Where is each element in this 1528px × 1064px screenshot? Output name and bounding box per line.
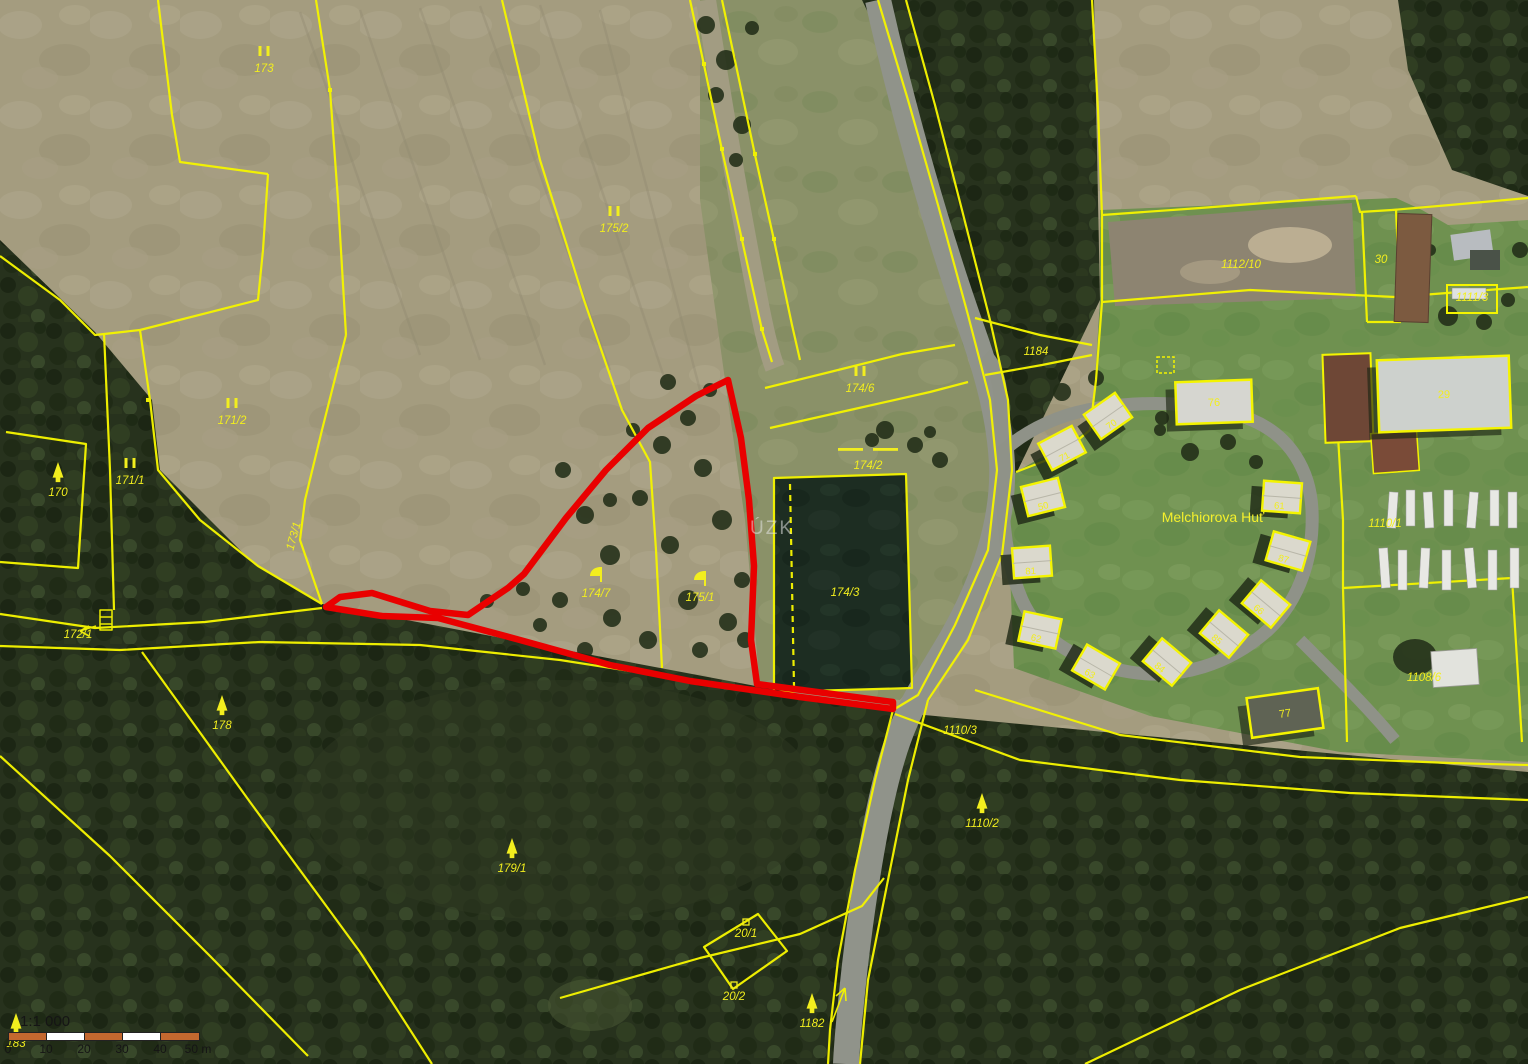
- forest-clearing: [548, 979, 632, 1031]
- parcel-label-group: 30: [1375, 254, 1388, 266]
- parcel-label: 171/2: [218, 415, 247, 427]
- parcel-label-group: 1108/6: [1407, 672, 1442, 684]
- watermark-text: ÚZK: [750, 517, 794, 539]
- parcel-label: 175/2: [600, 223, 629, 235]
- parcel-label-group: 174/3: [831, 587, 860, 599]
- scale-bar-segment: [161, 1033, 199, 1040]
- dash-icon: [873, 448, 898, 451]
- parcel-label: 173: [254, 63, 274, 75]
- scale-bar: 1:1 000 01020304050 m: [8, 1014, 238, 1057]
- parcel-label: 174/3: [831, 587, 860, 599]
- parcel-label: 1110/2: [965, 818, 999, 830]
- scale-tick-label: 0: [5, 1042, 12, 1056]
- scale-tick-label: 40: [153, 1042, 166, 1056]
- landuse-ii-icon: [235, 398, 238, 408]
- landuse-ii-icon: [617, 206, 620, 216]
- scale-tick-label: 20: [77, 1042, 90, 1056]
- parcel-label: 1110/3: [943, 725, 977, 737]
- building: 29: [1367, 356, 1512, 440]
- parcel-label: 178: [212, 720, 232, 732]
- place-name-label: Melchiorova Huť: [1162, 509, 1265, 525]
- building: 76: [1165, 380, 1253, 432]
- parcel-label-group: 172/1: [64, 629, 93, 641]
- forest-tone-patch: [300, 680, 820, 920]
- parcel-label: 179/1: [498, 863, 527, 875]
- parcel-label-group: 1110/1: [1368, 518, 1401, 530]
- cabin-number-label: 61: [1274, 500, 1285, 512]
- scale-ratio-label: 1:1 000: [20, 1014, 238, 1030]
- landuse-ii-icon: [259, 46, 262, 56]
- pond-water: [774, 474, 912, 692]
- parcel-label: 1182: [800, 1018, 825, 1030]
- scale-tick-label: 10: [39, 1042, 52, 1056]
- scale-bar-segments: [8, 1032, 200, 1041]
- parcel-label-group: 1184: [1024, 346, 1049, 358]
- landuse-ii-icon: [267, 46, 270, 56]
- parcel-label: 1110/1: [1368, 518, 1401, 530]
- scale-bar-ticks: 01020304050 m: [8, 1042, 238, 1057]
- scale-bar-segment: [47, 1033, 85, 1040]
- brown-building: [1322, 353, 1373, 443]
- scale-bar-segment: [123, 1033, 161, 1040]
- parcel-label: 174/7: [582, 588, 611, 600]
- parcel-label: 20/1: [734, 928, 757, 940]
- landuse-ii-icon: [125, 458, 128, 468]
- parcel-label: 170: [48, 487, 68, 499]
- farm-shed-roof: [1470, 250, 1500, 270]
- parcel-label: 174/2: [854, 460, 883, 472]
- map-canvas[interactable]: 7071508162638485668761 762977 173175/217…: [0, 0, 1528, 1064]
- building-number-label: 76: [1208, 397, 1221, 409]
- parcel-label-group: 1110/3: [943, 725, 977, 737]
- landuse-ii-icon: [855, 366, 858, 376]
- landuse-ii-icon: [863, 366, 866, 376]
- parcel-label: 171/1: [116, 475, 145, 487]
- landuse-ii-icon: [609, 206, 612, 216]
- landuse-ii-icon: [133, 458, 136, 468]
- landuse-ii-icon: [227, 398, 230, 408]
- scale-tick-label: 30: [115, 1042, 128, 1056]
- parcel-label: 1108/6: [1407, 672, 1442, 684]
- parcel-label: 174/6: [846, 383, 875, 395]
- parcel-label: 1111/3: [1456, 292, 1489, 304]
- sand-patch: [1248, 227, 1332, 263]
- dash-icon: [838, 448, 863, 451]
- parcel-label: 1184: [1024, 346, 1049, 358]
- parcel-label-group: 1111/3: [1456, 292, 1489, 304]
- scale-bar-segment: [85, 1033, 123, 1040]
- parcel-label: 30: [1375, 254, 1388, 266]
- scale-tick-label: 50 m: [185, 1042, 212, 1056]
- building-number-label: 29: [1438, 389, 1451, 401]
- parcel-label: 20/2: [722, 991, 746, 1003]
- parcel-label: 175/1: [686, 592, 715, 604]
- parcel-label-group: 1112/10: [1221, 259, 1261, 271]
- parcel-label: 1112/10: [1221, 259, 1261, 271]
- parcel-label: 172/1: [64, 629, 93, 641]
- cabin-number-label: 81: [1025, 566, 1036, 578]
- cadastral-ortho-map: 7071508162638485668761 762977 173175/217…: [0, 0, 1528, 1064]
- scale-bar-segment: [9, 1033, 47, 1040]
- cabin-number-label: 62: [1030, 632, 1043, 645]
- building-30: [1394, 213, 1432, 322]
- building-number-label: 77: [1278, 707, 1292, 721]
